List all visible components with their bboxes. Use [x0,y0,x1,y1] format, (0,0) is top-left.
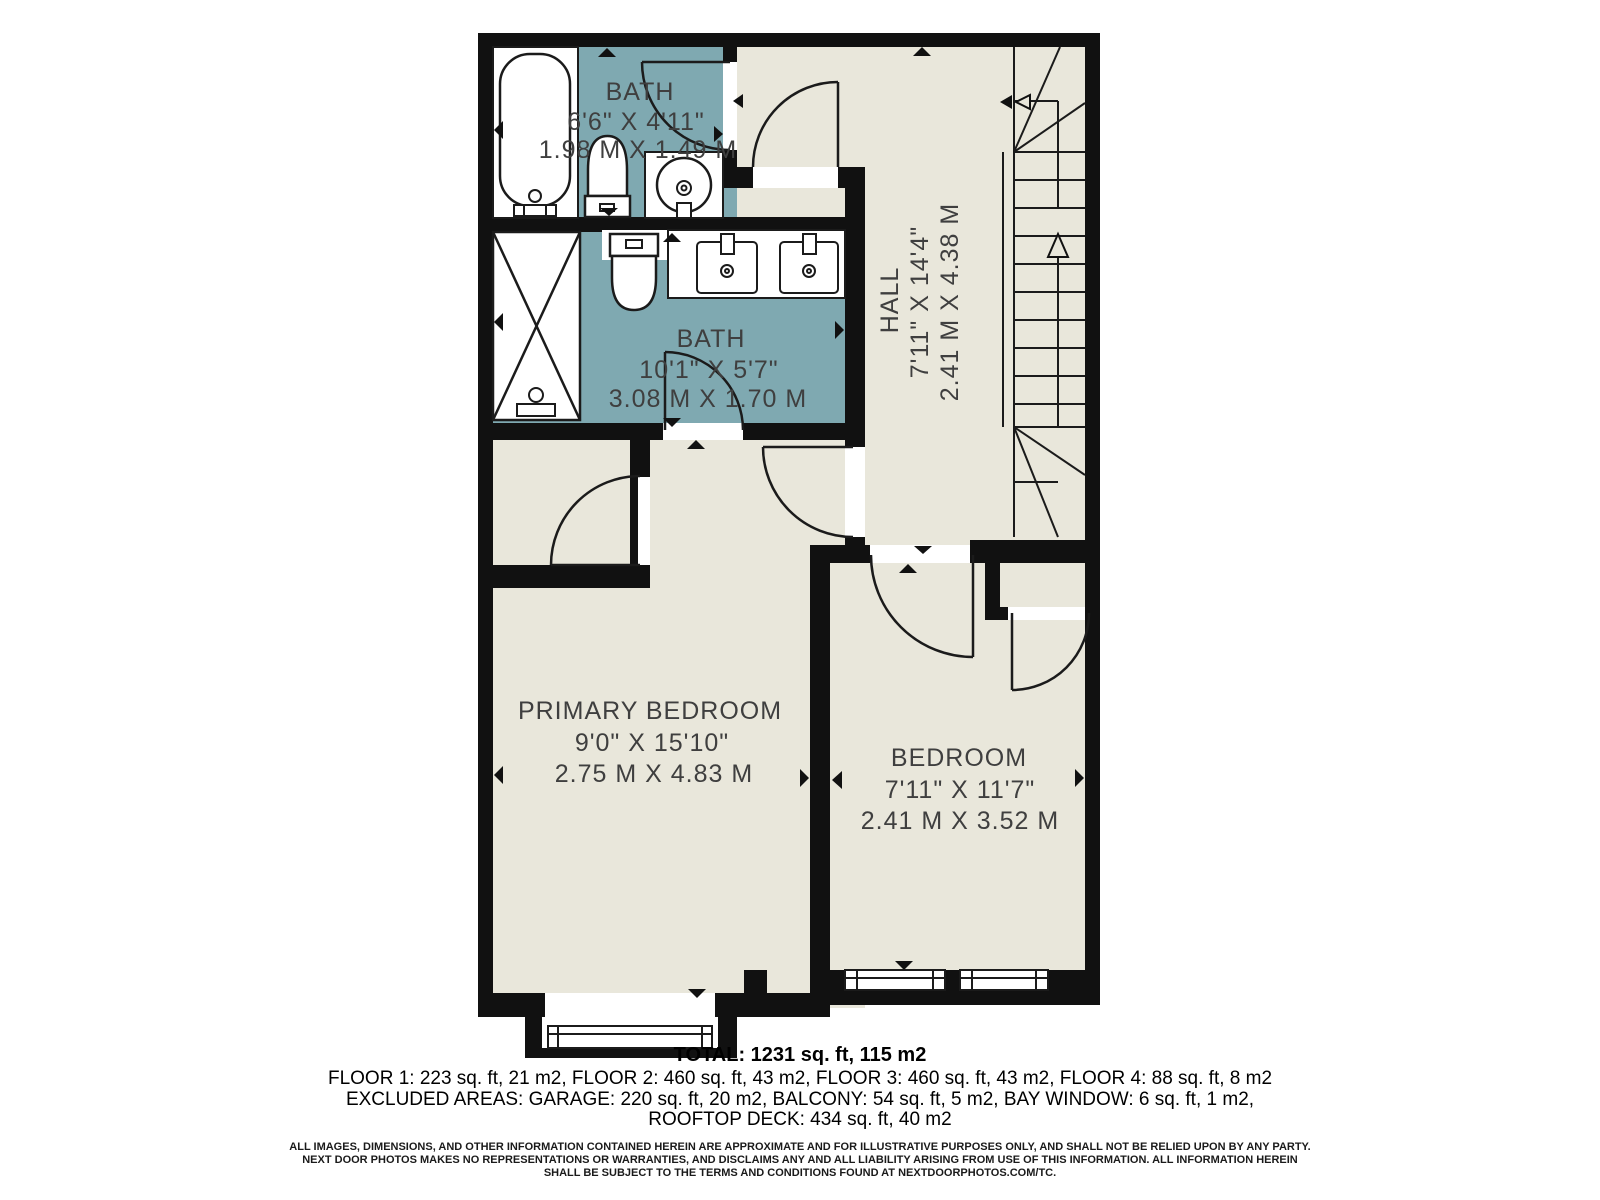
bedroom-name: BEDROOM [891,744,1027,772]
floor-plan-page: BATH 6'6" X 4'11" 1.98 M X 1.49 M BATH 1… [0,0,1600,1200]
hall-metric: 2.41 M X 4.38 M [936,203,964,401]
double-vanity [668,230,845,298]
floor-areas-line: FLOOR 1: 223 sq. ft, 21 m2, FLOOR 2: 460… [0,1068,1600,1090]
bath2-metric: 3.08 M X 1.70 M [609,385,807,413]
hall-name: HALL [876,267,904,334]
shower [493,232,580,420]
primary-bedroom-imperial: 9'0" X 15'10" [575,729,729,757]
bath1-name: BATH [606,78,675,106]
primary-bedroom-name: PRIMARY BEDROOM [518,697,782,725]
disclaimer-line-3: SHALL BE SUBJECT TO THE TERMS AND CONDIT… [0,1167,1600,1180]
excluded-areas-line: EXCLUDED AREAS: GARAGE: 220 sq. ft, 20 m… [0,1089,1600,1111]
bedroom-metric: 2.41 M X 3.52 M [861,807,1059,835]
bath1-imperial: 6'6" X 4'11" [567,108,705,136]
bath1-metric: 1.98 M X 1.49 M [539,136,737,164]
disclaimer: ALL IMAGES, DIMENSIONS, AND OTHER INFORM… [0,1141,1600,1180]
primary-bedroom-metric: 2.75 M X 4.83 M [555,760,753,788]
disclaimer-line-1: ALL IMAGES, DIMENSIONS, AND OTHER INFORM… [0,1141,1600,1154]
bedroom-imperial: 7'11" X 11'7" [885,776,1036,804]
rooftop-deck-line: ROOFTOP DECK: 434 sq. ft, 40 m2 [0,1109,1600,1131]
floor-plan: BATH 6'6" X 4'11" 1.98 M X 1.49 M BATH 1… [0,0,1600,1200]
total-area-line: TOTAL: 1231 sq. ft, 115 m2 [0,1044,1600,1067]
bathtub [493,47,578,218]
disclaimer-line-2: NEXT DOOR PHOTOS MAKES NO REPRESENTATION… [0,1154,1600,1167]
hall-imperial: 7'11" X 14'4" [906,226,934,378]
bath2-name: BATH [677,325,746,353]
bath2-imperial: 10'1" X 5'7" [639,356,778,384]
